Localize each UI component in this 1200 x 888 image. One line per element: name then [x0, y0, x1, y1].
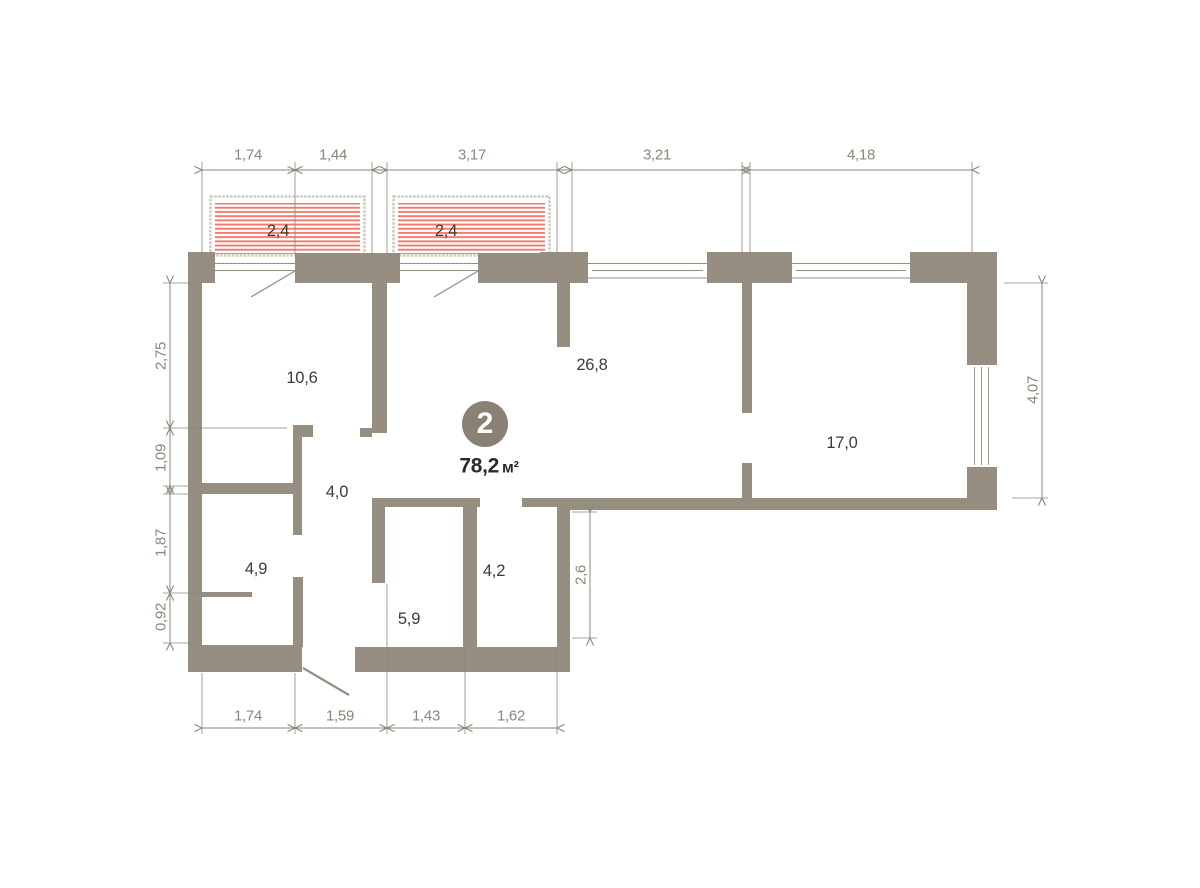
wall	[198, 592, 252, 597]
wall	[188, 483, 300, 494]
wall	[295, 253, 400, 283]
wall	[372, 283, 387, 433]
dim-label-top-4: 3,21	[643, 148, 671, 163]
floor-plan: 1,74 1,44 3,17 3,21 4,18 2,75 1,09 1,87 …	[0, 0, 1200, 888]
wall	[463, 507, 477, 647]
wall	[293, 577, 303, 647]
wall	[360, 428, 372, 437]
wall	[372, 498, 480, 507]
wall	[967, 467, 997, 510]
room-area-label: 4,9	[245, 561, 267, 578]
dim-label-bottom-3: 1,43	[412, 709, 440, 724]
wall	[570, 498, 997, 510]
total-area-unit: м²	[502, 460, 519, 477]
room-area-label: 10,6	[286, 370, 317, 387]
wall	[742, 463, 752, 500]
wall	[557, 498, 570, 647]
wall	[302, 425, 313, 437]
door-leaf	[251, 271, 295, 297]
wall	[372, 507, 385, 583]
room-area-label: 17,0	[826, 435, 857, 452]
dim-label-right-1: 4,07	[1026, 376, 1041, 404]
balcony-hatch	[215, 203, 545, 254]
unit-number: 2	[477, 407, 494, 441]
room-area-label: 4,2	[483, 563, 505, 580]
dim-label-top-2: 1,44	[319, 148, 347, 163]
wall	[967, 252, 997, 365]
total-area-value: 78,2	[459, 455, 499, 478]
room-area-label: 4,0	[326, 484, 348, 501]
wall	[557, 283, 570, 347]
dim-label-left-2: 1,09	[154, 444, 169, 472]
wall	[478, 253, 540, 283]
wall	[707, 252, 792, 283]
room-area-label: 5,9	[398, 611, 420, 628]
plan-linework	[0, 0, 1200, 888]
room-area-label: 26,8	[576, 357, 607, 374]
wall	[188, 283, 202, 672]
dim-label-bottom-1: 1,74	[234, 709, 262, 724]
door-leaf	[434, 271, 478, 297]
dim-label-left-3: 1,87	[154, 529, 169, 557]
wall	[540, 252, 588, 283]
wall	[293, 425, 302, 535]
total-area-label: 78,2м²	[459, 456, 518, 477]
dim-label-left-1: 2,75	[154, 342, 169, 370]
walls	[188, 252, 997, 672]
dim-label-interior: 2,6	[574, 565, 589, 585]
dim-label-top-1: 1,74	[234, 148, 262, 163]
wall	[742, 283, 752, 413]
balcony-floor-hatch	[398, 203, 545, 254]
dim-label-top-3: 3,17	[458, 148, 486, 163]
balcony-area-label: 2,4	[267, 223, 289, 240]
dim-label-bottom-4: 1,62	[497, 709, 525, 724]
wall	[188, 252, 215, 283]
dim-label-top-5: 4,18	[847, 148, 875, 163]
balcony-area-label: 2,4	[435, 223, 457, 240]
dim-label-left-4: 0,92	[154, 603, 169, 631]
dim-label-bottom-2: 1,59	[326, 709, 354, 724]
unit-number-badge: 2	[462, 401, 508, 447]
entrance-door-leaf	[303, 668, 349, 695]
wall	[188, 645, 302, 672]
